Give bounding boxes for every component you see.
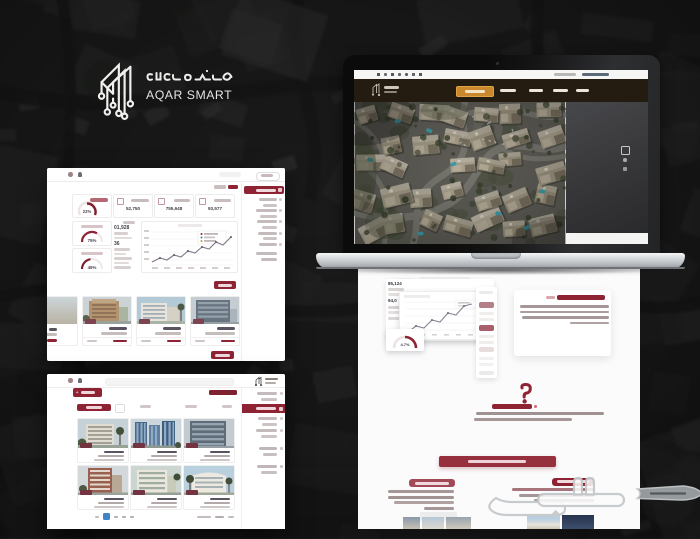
svg-text:4.7%: 4.7% [400,342,410,347]
svg-text:45%: 45% [88,265,97,270]
svg-text:22%: 22% [83,209,92,214]
svg-text:75%: 75% [88,238,97,243]
